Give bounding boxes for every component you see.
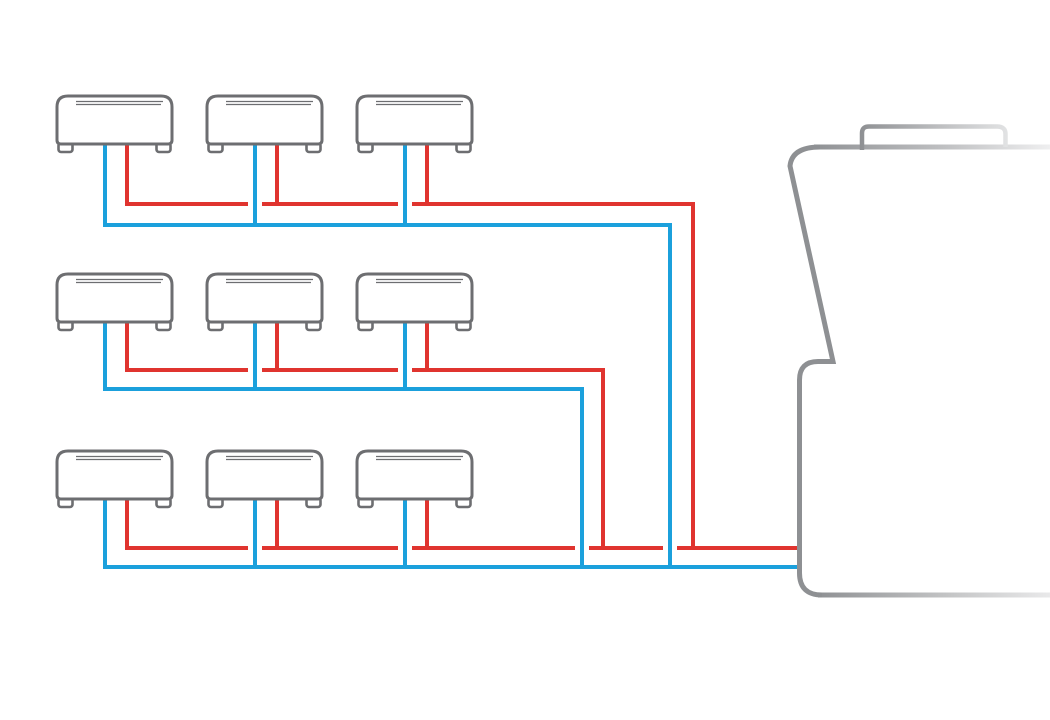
- indoor-unit-2-3: [357, 274, 472, 330]
- unit-body: [207, 274, 322, 322]
- unit-body: [207, 96, 322, 144]
- unit-body: [57, 96, 172, 144]
- indoor-unit-3-2: [207, 451, 322, 507]
- indoor-unit-2-1: [57, 274, 172, 330]
- diagram-canvas: [0, 0, 1050, 720]
- indoor-unit-3-1: [57, 451, 172, 507]
- hvac-piping-diagram: [0, 0, 1050, 720]
- unit-body: [57, 451, 172, 499]
- suction-line-row-2: [105, 321, 582, 567]
- red-pipe-bus: [127, 143, 248, 204]
- unit-body: [207, 451, 322, 499]
- outdoor-unit: [790, 127, 1050, 596]
- indoor-unit-3-3: [357, 451, 472, 507]
- blue-pipe-bus: [105, 321, 582, 567]
- red-pipe-bus: [127, 321, 248, 370]
- blue-pipe-bus: [105, 143, 670, 567]
- liquid-line-row-2: [127, 321, 603, 548]
- outdoor-unit-left-outline: [790, 147, 833, 595]
- unit-body: [357, 451, 472, 499]
- suction-line-row-1: [105, 143, 670, 567]
- unit-body: [57, 274, 172, 322]
- indoor-unit-2-2: [207, 274, 322, 330]
- red-pipe-bus: [127, 498, 248, 548]
- indoor-unit-1-2: [207, 96, 322, 152]
- indoor-unit-1-3: [357, 96, 472, 152]
- indoor-unit-1-1: [57, 96, 172, 152]
- unit-body: [357, 274, 472, 322]
- unit-body: [357, 96, 472, 144]
